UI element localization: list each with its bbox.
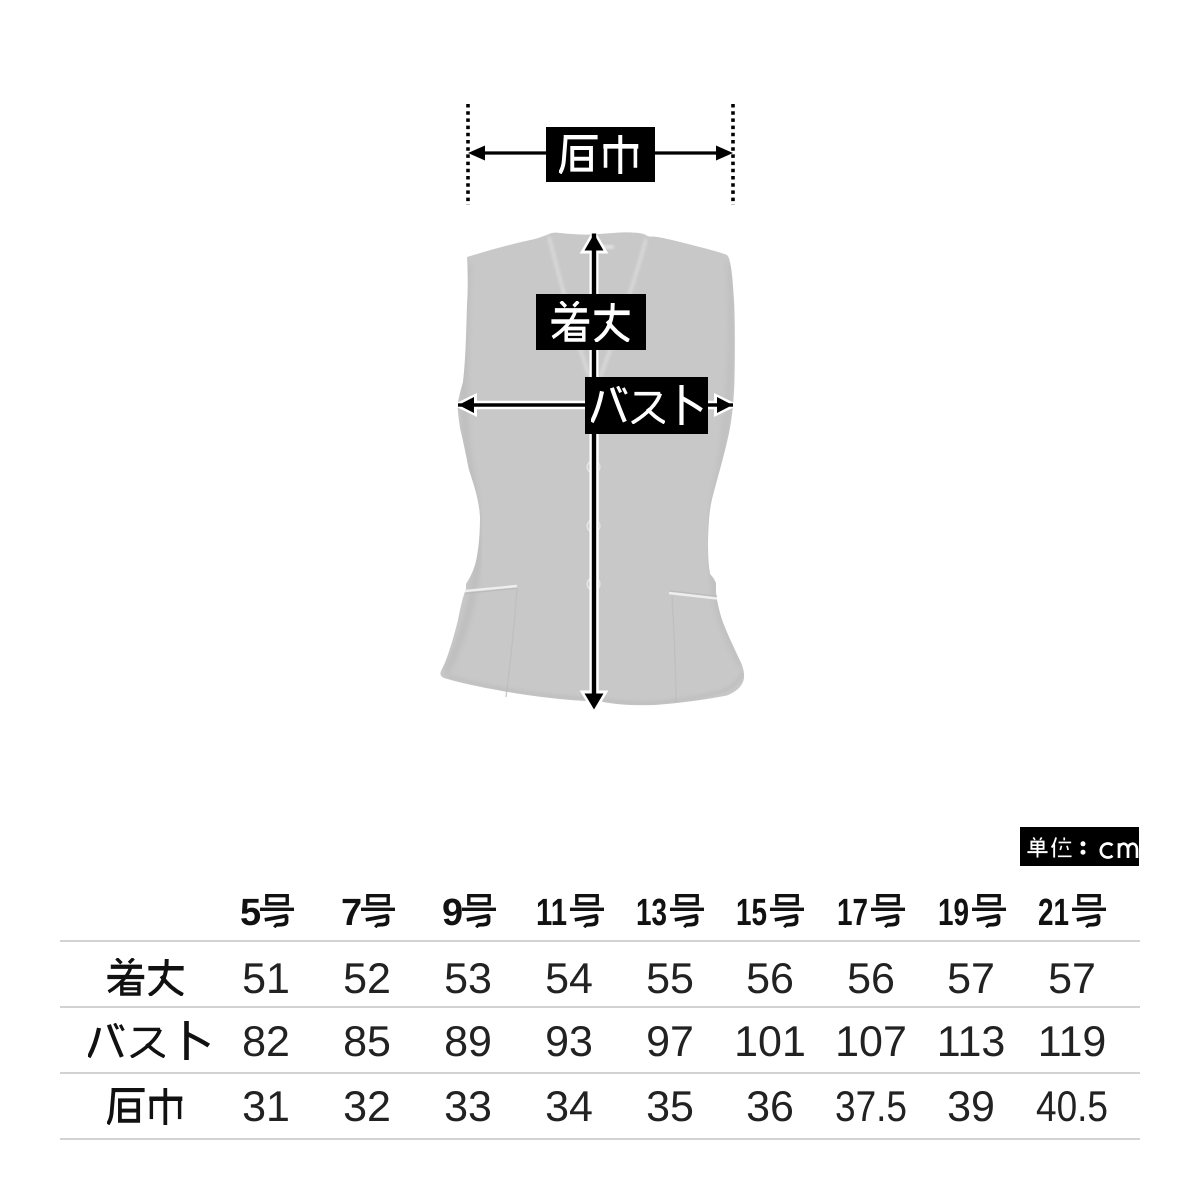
svg-text:5: 5 [240, 892, 261, 934]
svg-text:33: 33 [444, 1083, 492, 1131]
svg-text:15: 15 [736, 892, 767, 934]
svg-text:11: 11 [536, 892, 567, 934]
svg-text:53: 53 [444, 955, 492, 1003]
svg-text:31: 31 [242, 1083, 290, 1131]
svg-text:82: 82 [242, 1018, 290, 1066]
svg-text:56: 56 [847, 955, 895, 1003]
svg-text:13: 13 [636, 892, 667, 934]
svg-text:101: 101 [734, 1018, 806, 1066]
svg-text:32: 32 [343, 1083, 391, 1131]
svg-text:97: 97 [646, 1018, 694, 1066]
svg-text:107: 107 [835, 1018, 907, 1066]
svg-text:55: 55 [646, 955, 694, 1003]
svg-text:34: 34 [545, 1083, 593, 1131]
svg-text:57: 57 [947, 955, 995, 1003]
svg-text:37.5: 37.5 [835, 1083, 907, 1131]
svg-text:89: 89 [444, 1018, 492, 1066]
svg-text:36: 36 [746, 1083, 794, 1131]
svg-text:17: 17 [837, 892, 868, 934]
svg-text:51: 51 [242, 955, 290, 1003]
svg-text:119: 119 [1038, 1018, 1107, 1066]
svg-text:85: 85 [343, 1018, 391, 1066]
svg-text:113: 113 [937, 1018, 1006, 1066]
svg-text:35: 35 [646, 1083, 694, 1131]
svg-text:52: 52 [343, 955, 391, 1003]
svg-text:93: 93 [545, 1018, 593, 1066]
svg-text:39: 39 [947, 1083, 995, 1131]
svg-text:9: 9 [442, 892, 463, 934]
svg-text:40.5: 40.5 [1036, 1083, 1108, 1131]
svg-text:21: 21 [1038, 892, 1069, 934]
svg-text:57: 57 [1048, 955, 1096, 1003]
svg-text:19: 19 [938, 892, 969, 934]
svg-text:56: 56 [746, 955, 794, 1003]
svg-text:7: 7 [341, 892, 362, 934]
svg-text:54: 54 [545, 955, 593, 1003]
